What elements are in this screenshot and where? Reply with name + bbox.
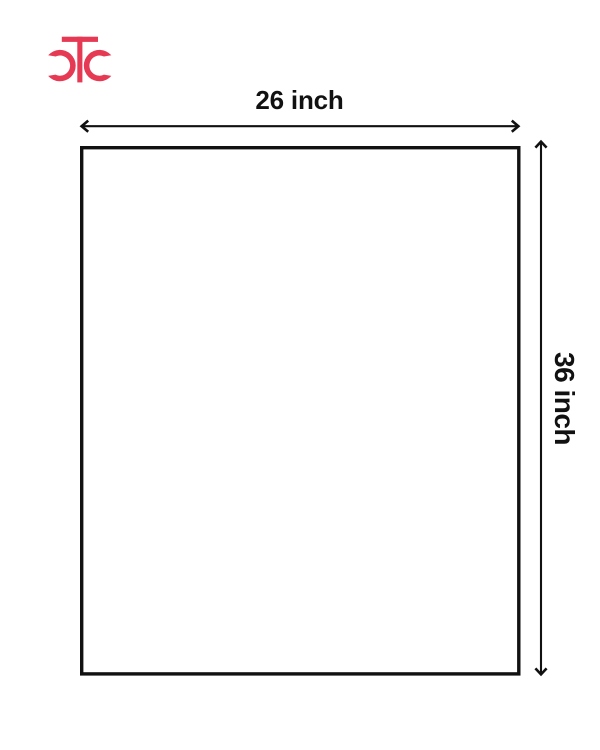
svg-text:36 inch: 36 inch <box>549 352 580 445</box>
svg-text:26 inch: 26 inch <box>255 85 343 115</box>
